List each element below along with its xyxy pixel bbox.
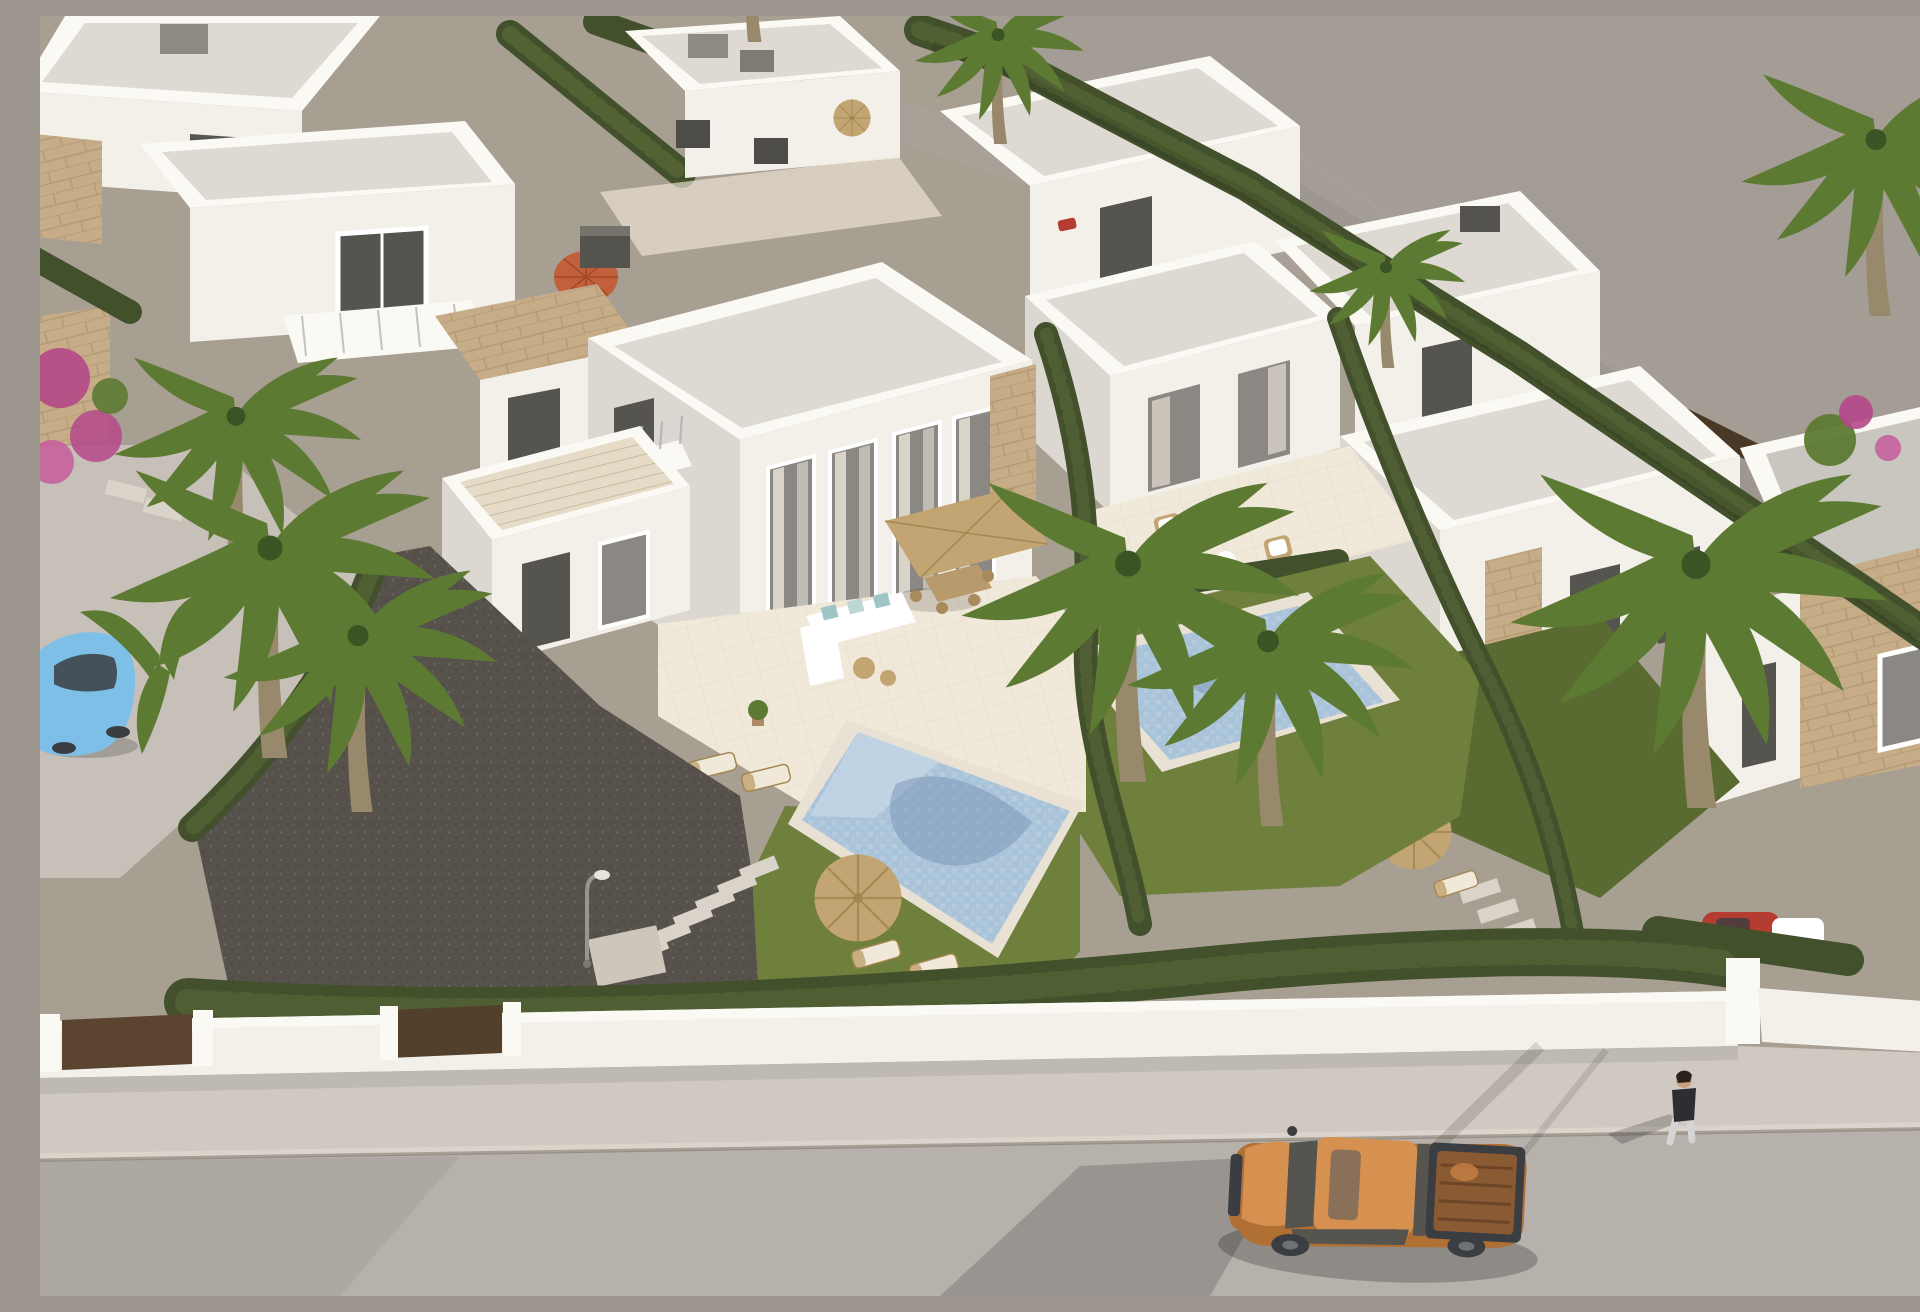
wall-pillar (193, 1010, 213, 1066)
chimney (1460, 206, 1500, 232)
roof-unit (740, 50, 774, 72)
sunroof (1328, 1149, 1362, 1220)
cab-roof (1313, 1136, 1418, 1235)
curtain-window (830, 440, 876, 624)
coffee-table (853, 657, 875, 679)
gate (390, 1005, 502, 1058)
wall-pillar (40, 1014, 60, 1072)
straw-parasol (833, 99, 870, 136)
straw-parasol (815, 855, 902, 942)
wall-pillar (503, 1002, 521, 1056)
pickup-truck (1217, 1122, 1544, 1290)
chimney (754, 138, 788, 164)
coffee-table (880, 670, 896, 686)
blue-car (40, 632, 138, 758)
gate (62, 1014, 192, 1070)
chimney (676, 120, 710, 148)
window (1100, 196, 1152, 280)
roof-unit (688, 34, 728, 58)
roof-unit (160, 24, 208, 54)
stone-accent (40, 134, 102, 244)
glass-door (600, 532, 648, 628)
wall-pillar (380, 1006, 398, 1060)
torso (1672, 1088, 1696, 1122)
window (1880, 644, 1920, 750)
window (522, 552, 570, 650)
corner-pillar (1726, 958, 1760, 1044)
glass-door (1238, 360, 1290, 468)
chimney-top (580, 226, 630, 236)
window (1422, 337, 1472, 417)
glass-door (1148, 384, 1200, 492)
hood (1241, 1140, 1289, 1227)
truck-bed (1425, 1142, 1526, 1243)
architectural-render (40, 16, 1920, 1296)
windshield (1285, 1139, 1318, 1230)
